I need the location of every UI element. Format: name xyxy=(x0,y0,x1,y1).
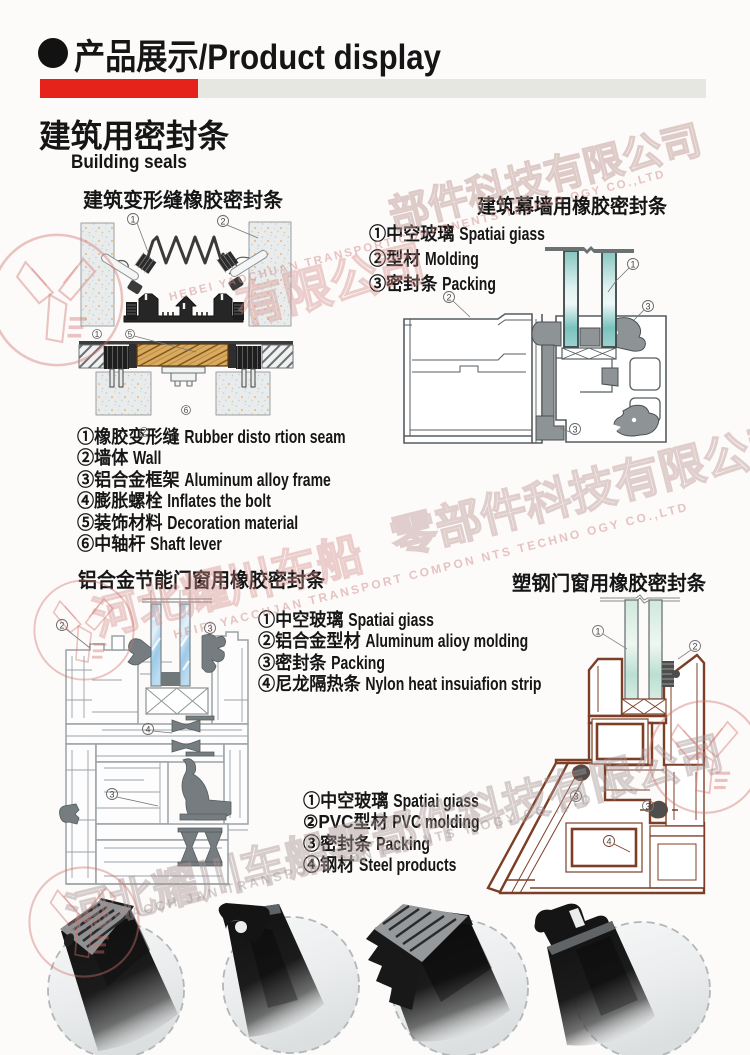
svg-text:1: 1 xyxy=(595,627,600,637)
svg-text:1: 1 xyxy=(630,260,635,270)
svg-text:2: 2 xyxy=(692,642,697,652)
svg-text:6: 6 xyxy=(184,406,189,415)
svg-text:3: 3 xyxy=(645,302,650,312)
svg-text:2: 2 xyxy=(446,293,451,303)
svg-text:1: 1 xyxy=(130,215,135,225)
svg-text:3: 3 xyxy=(573,792,578,802)
svg-text:5: 5 xyxy=(128,330,133,339)
svg-text:4: 4 xyxy=(145,725,150,735)
svg-text:2: 2 xyxy=(59,621,64,631)
svg-text:3: 3 xyxy=(207,624,212,634)
svg-text:3: 3 xyxy=(109,790,114,800)
svg-text:4: 4 xyxy=(606,837,611,847)
svg-text:3: 3 xyxy=(572,425,577,435)
svg-text:3: 3 xyxy=(645,802,650,812)
svg-text:2: 2 xyxy=(142,428,147,437)
svg-text:1: 1 xyxy=(95,330,100,339)
svg-text:2: 2 xyxy=(220,217,225,227)
